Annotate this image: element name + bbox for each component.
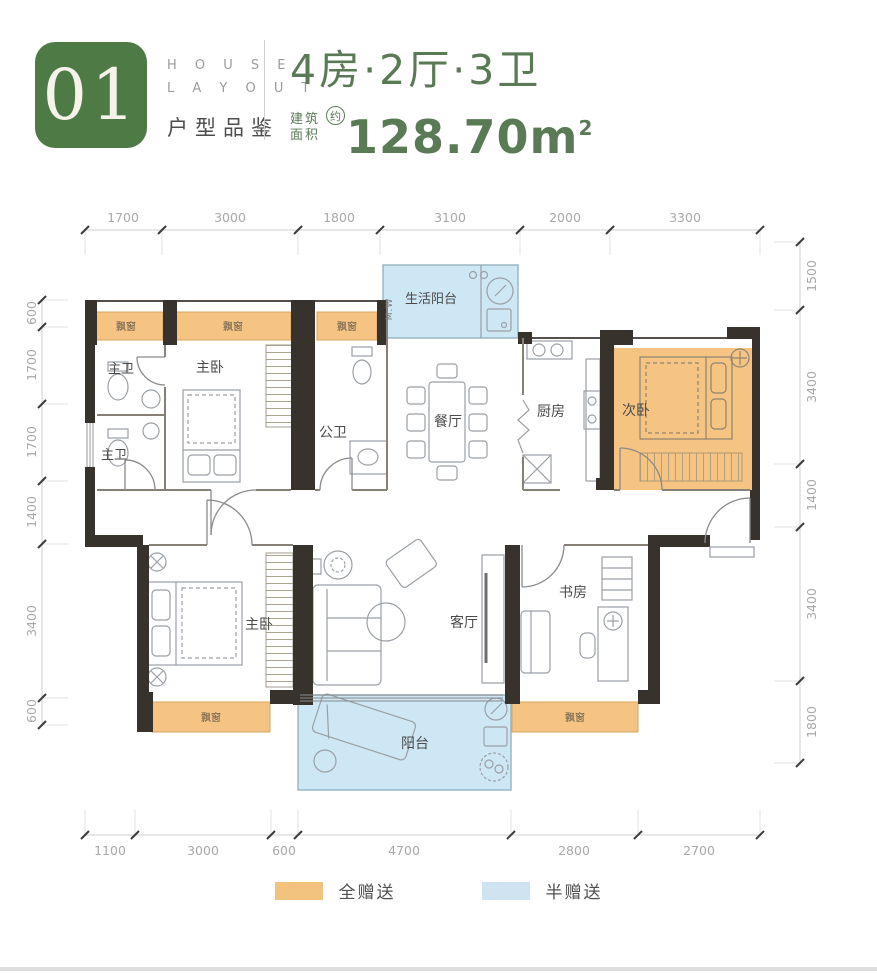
bottom-divider [0,967,877,971]
dim-left-4: 1400 [24,496,39,528]
dimension-chain-top: 1700 3000 1800 3100 2000 3300 [81,210,764,255]
dim-left-3: 1700 [24,426,39,458]
unit-number: 01 [42,54,139,136]
gift-zones [89,265,752,790]
area-prefix-line1: 建筑 [290,112,320,128]
kitchen-sink-icon [527,341,572,359]
dim-left-5: 3400 [24,605,39,637]
door-arc [137,357,165,385]
bay-window-label: 飘窗 [565,711,585,724]
door-arc [207,500,252,545]
room-label-balcony: 阳台 [401,736,429,752]
downlight-icon [148,553,166,571]
room-label-kitchen: 厨房 [537,404,565,420]
page-title: 4房·2厅·3卫 [290,36,593,96]
entry-step [710,547,754,557]
dim-right-1: 1500 [804,260,819,292]
area-exponent: 2 [578,116,593,140]
coffee-table-icon [367,603,405,641]
room-label-second-bedroom: 次卧 [622,403,650,419]
legend: 全赠送 半赠送 [0,878,877,903]
downlight-icon [148,668,166,686]
area-prefix: 建筑 面积 [290,112,320,144]
page-header: 01 H O U S E L A Y O U T 户型品鉴 4房·2厅·3卫 建… [0,0,877,195]
room-label-master-bath-upper: 主卫 [108,362,134,377]
dim-bottom-1: 1100 [94,843,126,855]
room-label-public-bath: 公卫 [319,425,347,441]
dim-left-1: 600 [24,301,39,325]
room-label-living-room: 客厅 [450,614,478,631]
dim-top-2: 3000 [214,210,246,225]
dim-top-6: 3300 [669,210,701,225]
dim-top-4: 3100 [434,210,466,225]
dim-right-4: 3400 [804,588,819,620]
room-labels: 生活阳台 M.W 主卫 主卫 主卧 公卫 餐厅 厨房 次卧 主卧 客厅 书房 阳… [101,292,650,752]
full-gift-swatch [275,882,323,900]
room-label-service-balcony: 生活阳台 [405,292,457,307]
floor-plan: 生活阳台 M.W 主卫 主卫 主卧 公卫 餐厅 厨房 次卧 主卧 客厅 书房 阳… [0,195,877,855]
dim-left-6: 600 [24,699,39,723]
stove-icon [584,359,600,481]
folding-door-icon [518,400,529,453]
room-label-dining: 餐厅 [434,414,462,430]
approx-circle: 约 [326,106,345,125]
dim-top-5: 2000 [549,210,581,225]
dim-bottom-6: 2700 [683,843,715,855]
legend-item-half-gift: 半赠送 [482,878,603,903]
bed-icon [183,390,240,482]
dim-bottom-2: 3000 [187,843,219,855]
loveseat-icon [521,611,550,673]
window-icon [85,423,95,467]
half-gift-label: 半赠送 [546,878,603,903]
dim-right-2: 3400 [804,371,819,403]
header-divider [264,40,265,140]
door-arc [125,460,155,490]
desk-icon [580,607,628,681]
title-block: 4房·2厅·3卫 建筑 面积 约 128.70m2 [290,36,593,160]
dim-bottom-4: 4700 [388,843,420,855]
dim-bottom-5: 2800 [558,843,590,855]
room-label-master-bath-lower: 主卫 [101,448,127,463]
bookshelf-icon [602,557,632,600]
bay-window-label: 飘窗 [223,320,243,333]
toilet-icon [352,347,372,384]
flue-shaft-icon [523,455,551,483]
dimension-chain-bottom: 1100 3000 600 4700 2800 2700 [81,810,764,855]
dim-right-5: 1800 [804,706,819,738]
sink-icon [142,390,160,408]
dim-top-3: 1800 [323,210,355,225]
washing-machine-label: M.W [385,298,395,321]
room-label-master-bedroom-top: 主卧 [196,360,224,376]
dimension-chain-right: 1500 3400 1400 3400 1800 [774,238,819,767]
dim-right-3: 1400 [804,479,819,511]
dim-top-1: 1700 [107,210,139,225]
unit-number-badge: 01 [35,42,147,148]
dim-left-2: 1700 [24,349,39,381]
area-prefix-line2: 面积 [290,128,320,144]
armchair-icon [385,538,438,589]
dim-bottom-3: 600 [272,843,296,855]
room-label-study: 书房 [559,585,587,601]
area-value: 128.70m2 [346,105,593,160]
sink-icon [143,423,159,439]
wardrobe-icon [266,345,293,427]
legend-item-full-gift: 全赠送 [275,878,396,903]
plant-icon [324,551,352,579]
bed-icon [148,582,242,665]
area-unit: m [530,110,579,164]
door-arc [522,545,564,587]
bay-window-label: 飘窗 [116,320,136,333]
bay-window-label: 飘窗 [201,711,221,724]
ceiling-fan-icon [731,349,749,367]
area-number: 128.70 [346,110,530,164]
half-gift-swatch [482,882,530,900]
tv-cabinet-icon [482,555,504,683]
bay-window-label: 飘窗 [337,320,357,333]
door-arc [320,458,352,490]
area-row: 建筑 面积 约 128.70m2 [290,105,593,160]
dimension-chain-left: 600 1700 1700 1400 3400 600 [24,296,68,729]
sofa-icon [313,585,381,685]
full-gift-label: 全赠送 [339,878,396,903]
entry-door-arc [705,498,750,543]
vanity-sink-icon [350,441,387,474]
room-label-master-bedroom-bottom: 主卧 [245,617,273,633]
